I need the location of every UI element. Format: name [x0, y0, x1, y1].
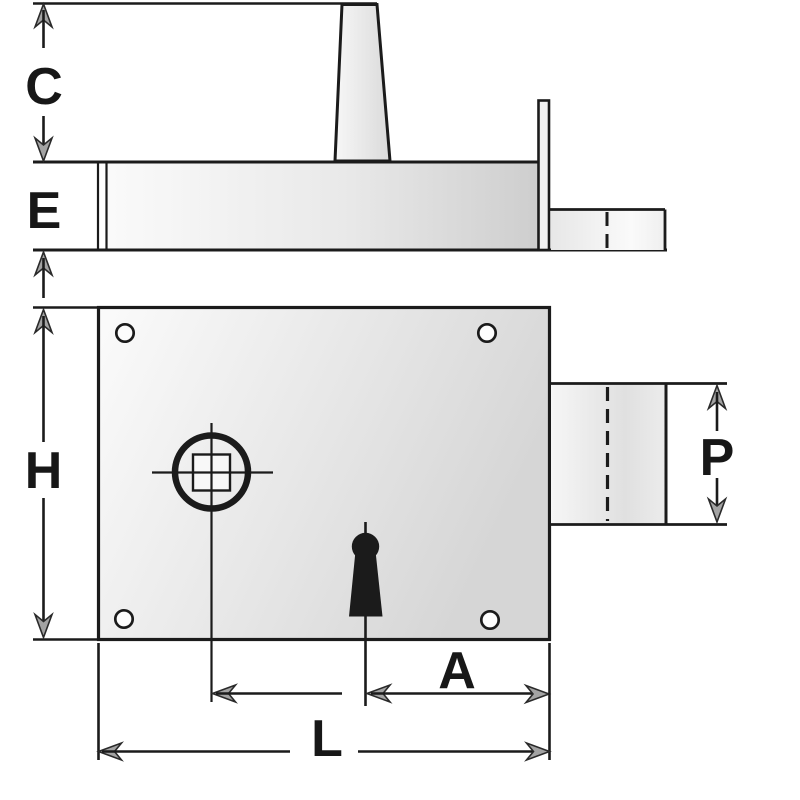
- dimension-a: A: [213, 642, 550, 703]
- dimension-c: C: [25, 4, 63, 161]
- dimension-h: H: [25, 310, 63, 638]
- faceplate-profile: [539, 101, 550, 251]
- bolt-wedge-profile: [335, 5, 390, 162]
- screw-hole-top-left: [116, 324, 133, 341]
- dim-label-l: L: [311, 710, 343, 768]
- dim-label-c: C: [25, 58, 63, 116]
- dim-label-a: A: [438, 642, 476, 700]
- screw-hole-bottom-left: [115, 610, 132, 627]
- diagram-canvas: C E: [0, 0, 800, 800]
- dimension-e: E: [27, 182, 62, 298]
- top-profile-view: [33, 4, 667, 251]
- screw-hole-bottom-right: [481, 611, 498, 628]
- dim-label-h: H: [25, 442, 63, 500]
- keyhole: [349, 522, 383, 706]
- front-view: [33, 308, 727, 707]
- dimension-p: P: [700, 386, 735, 523]
- dimension-l: L: [99, 643, 550, 768]
- lock-dimension-diagram: C E: [0, 0, 800, 800]
- dim-label-e: E: [27, 182, 62, 240]
- case-body-profile: [107, 164, 538, 250]
- screw-hole-top-right: [478, 324, 495, 341]
